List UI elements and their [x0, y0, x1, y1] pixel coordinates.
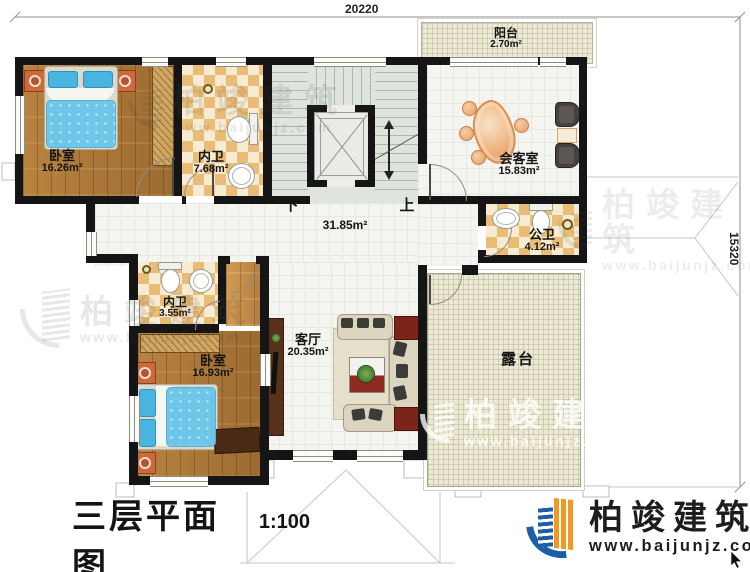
- elevator-door: [327, 180, 355, 187]
- room-area: 16.26m²: [42, 163, 83, 175]
- window: [142, 57, 168, 67]
- room-label-terrace: 露台: [501, 348, 535, 369]
- pouf: [514, 118, 529, 133]
- dresser: [213, 427, 260, 454]
- wall-segment: [462, 265, 478, 275]
- window: [540, 57, 566, 67]
- stair-flight-top: [308, 64, 375, 105]
- ceiling-lamp: [142, 265, 151, 274]
- dimension-height: 15320: [727, 232, 741, 265]
- room-label-bedroom2: 卧室 16.93m²: [193, 354, 234, 380]
- room-area: 2.70m²: [490, 40, 522, 51]
- sink: [189, 269, 213, 293]
- title-block: 三层平面图 1:100 本层建筑面积：135.79m²层高：3.3m: [62, 489, 318, 572]
- window: [150, 476, 208, 487]
- wardrobe-bedroom2: [140, 334, 220, 353]
- pouf: [462, 101, 477, 116]
- brand-logo: 柏竣建筑 www.baijunjz.com: [528, 497, 750, 559]
- mattress: [46, 100, 116, 148]
- wardrobe-bedroom1: [152, 66, 174, 166]
- room-label-public-bath: 公卫 4.12m²: [525, 228, 560, 254]
- pillow: [139, 419, 156, 447]
- wall-segment: [129, 256, 138, 485]
- sofa-cushion: [368, 408, 383, 421]
- side-table: [557, 128, 577, 143]
- pillow: [139, 389, 156, 417]
- elevator-door: [327, 105, 355, 112]
- wall-segment: [86, 204, 95, 234]
- plant: [358, 366, 374, 382]
- plan-scale: 1:100: [259, 511, 310, 534]
- wall-segment: [15, 196, 139, 204]
- room-label-ensuite2: 内卫 3.55m²: [159, 296, 191, 320]
- brand-website: www.baijunjz.com: [589, 537, 750, 556]
- logo-blue-building: [538, 506, 553, 547]
- wall-segment: [174, 57, 182, 196]
- wall-segment: [182, 196, 186, 204]
- room-label-balcony: 阳台 2.70m²: [490, 27, 522, 51]
- sofa-cushion: [351, 408, 365, 421]
- window: [357, 450, 403, 462]
- wall-segment: [478, 204, 486, 226]
- toilet: [161, 269, 180, 293]
- stair-flight-right: [375, 64, 418, 196]
- window: [86, 232, 97, 256]
- wall-segment: [263, 57, 272, 204]
- sofa-cushion: [373, 318, 385, 328]
- room-area: 15.83m²: [499, 166, 540, 178]
- wall-segment: [579, 57, 587, 204]
- window: [216, 57, 246, 67]
- window: [293, 450, 333, 462]
- room-name: 内卫: [159, 296, 191, 309]
- pillow: [83, 71, 113, 88]
- room-area: 7.68m²: [194, 164, 229, 176]
- floor-plan-page: 卧室 16.26m² 内卫 7.68m² 阳台 2.70m² 会客室 15.83…: [0, 0, 750, 572]
- pouf: [459, 126, 474, 141]
- room-label-reception: 会客室 15.83m²: [499, 152, 540, 178]
- stair-flight-left: [272, 64, 308, 196]
- room-name: 卧室: [42, 149, 83, 163]
- sofa-cushion: [357, 318, 369, 328]
- mouse-cursor: [730, 551, 745, 569]
- brand-text: 柏竣建筑 www.baijunjz.com: [589, 500, 750, 556]
- window: [260, 354, 271, 386]
- wall-segment: [418, 265, 427, 460]
- room-area: 4.12m²: [525, 242, 560, 254]
- room-area: 16.93m²: [193, 368, 234, 380]
- plan-title-row: 三层平面图 1:100: [62, 489, 318, 572]
- window: [129, 396, 140, 442]
- nightstand: [24, 70, 46, 92]
- sofa-cushion: [393, 385, 408, 401]
- brand-company: 柏竣建筑: [589, 500, 750, 537]
- window: [314, 57, 386, 67]
- sofa-cushion: [396, 364, 408, 378]
- wall-segment: [418, 57, 427, 164]
- floor-terrace: [427, 273, 581, 487]
- elevator-wall: [368, 105, 375, 187]
- end-table: [394, 407, 420, 431]
- room-name: 公卫: [525, 228, 560, 242]
- sink: [492, 208, 520, 229]
- floor-hall-corridor: [418, 204, 478, 266]
- room-name: 卧室: [193, 354, 234, 368]
- room-label-living: 客厅 20.35m²: [288, 333, 329, 359]
- balcony-door: [450, 57, 538, 67]
- room-label-ensuite1: 内卫 7.68m²: [194, 150, 229, 176]
- stair-arrow-up: [384, 120, 394, 129]
- room-name: 内卫: [194, 150, 229, 164]
- plan-title: 三层平面图: [72, 489, 245, 572]
- mattress: [166, 387, 216, 447]
- room-name: 会客室: [499, 152, 540, 166]
- elevator-wall: [307, 105, 314, 187]
- elevator-shaft: [314, 112, 370, 182]
- sofa-cushion: [341, 318, 353, 328]
- wall-segment: [579, 204, 587, 263]
- window: [129, 300, 140, 326]
- brand-logo-icon: [528, 497, 580, 559]
- plant-small: [272, 334, 280, 342]
- end-table: [394, 316, 420, 340]
- room-area: 3.55m²: [159, 309, 191, 320]
- window: [15, 96, 25, 154]
- ceiling-lamp: [203, 84, 213, 94]
- ceiling-lamp: [562, 219, 573, 230]
- stair-up-label: 上: [399, 194, 414, 215]
- wall-segment: [218, 256, 230, 264]
- logo-orange-building: [554, 498, 573, 550]
- room-label-bedroom1: 卧室 16.26m²: [42, 149, 83, 175]
- room-name: 客厅: [288, 333, 329, 347]
- door-leaf: [429, 275, 431, 304]
- sink: [228, 163, 255, 189]
- stair-down-label: 下: [283, 194, 298, 215]
- room-area: 20.35m²: [288, 347, 329, 359]
- hall-area-label: 31.85m²: [323, 218, 368, 232]
- armchair: [555, 143, 580, 168]
- stair-arrow-down: [384, 171, 394, 180]
- dimension-width: 20220: [345, 2, 378, 16]
- wall-segment: [478, 255, 587, 263]
- room-name: 阳台: [490, 27, 522, 40]
- armchair: [555, 102, 580, 127]
- door-leaf: [429, 164, 431, 200]
- pouf: [471, 150, 486, 165]
- toilet: [227, 116, 251, 143]
- door-leaf: [172, 158, 174, 196]
- pillow: [48, 71, 78, 88]
